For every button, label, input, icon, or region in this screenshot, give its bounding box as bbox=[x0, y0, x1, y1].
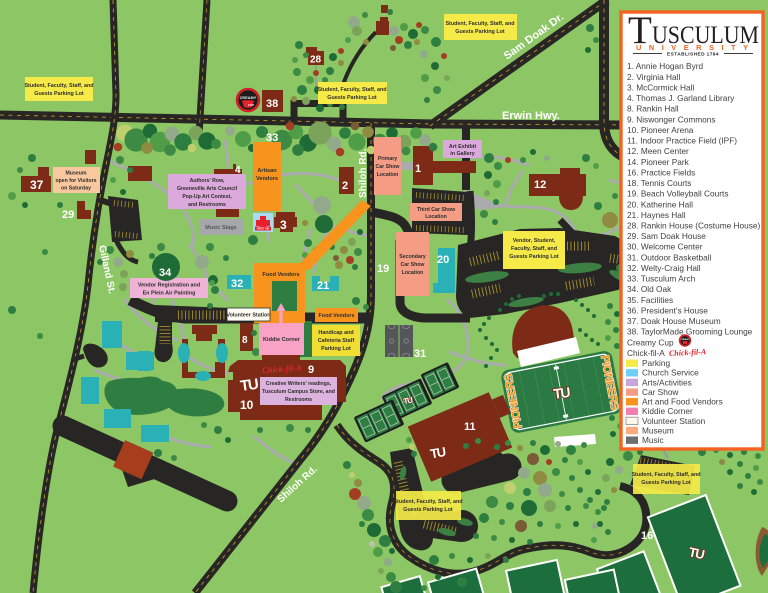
svg-text:Creamy Cup: Creamy Cup bbox=[627, 337, 674, 347]
svg-text:in Gallery: in Gallery bbox=[450, 151, 475, 157]
svg-text:Music Stage: Music Stage bbox=[205, 225, 236, 231]
svg-text:Guests Parking Lot: Guests Parking Lot bbox=[403, 507, 453, 513]
svg-text:Student, Faculty, Staff, and: Student, Faculty, Staff, and bbox=[631, 472, 700, 478]
svg-text:32. Welty-Craig Hall: 32. Welty-Craig Hall bbox=[627, 263, 701, 273]
svg-text:Car Show: Car Show bbox=[376, 164, 401, 170]
svg-text:Car Show: Car Show bbox=[642, 387, 679, 397]
svg-text:4. Thomas J. Garland Library: 4. Thomas J. Garland Library bbox=[627, 93, 735, 103]
svg-text:Restrooms: Restrooms bbox=[285, 397, 312, 403]
svg-text:Tusculum Campus Store, and: Tusculum Campus Store, and bbox=[262, 389, 335, 395]
svg-text:Location: Location bbox=[402, 270, 424, 276]
svg-text:Student, Faculty, Staff, and: Student, Faculty, Staff, and bbox=[393, 499, 462, 505]
svg-text:Student, Faculty, Staff, and: Student, Faculty, Staff, and bbox=[445, 21, 514, 27]
svg-text:Vendor Registration and: Vendor Registration and bbox=[138, 283, 200, 289]
svg-text:21. Haynes Hall: 21. Haynes Hall bbox=[627, 210, 686, 220]
svg-text:Food Vendors: Food Vendors bbox=[319, 313, 355, 319]
svg-text:9. Niswonger Commons: 9. Niswonger Commons bbox=[627, 114, 716, 124]
svg-text:Art and Food Vendors: Art and Food Vendors bbox=[642, 397, 723, 407]
svg-text:12: 12 bbox=[534, 179, 546, 191]
svg-text:Volunteer Station: Volunteer Station bbox=[226, 313, 270, 319]
svg-text:and Restrooms: and Restrooms bbox=[188, 202, 226, 208]
svg-text:Car Show: Car Show bbox=[401, 262, 426, 268]
svg-text:Kiddie Corner: Kiddie Corner bbox=[642, 406, 693, 416]
svg-text:1. Annie Hogan Byrd: 1. Annie Hogan Byrd bbox=[627, 61, 703, 71]
svg-text:2. Virginia Hall: 2. Virginia Hall bbox=[627, 72, 680, 82]
svg-text:Kiddie Corner: Kiddie Corner bbox=[263, 337, 301, 343]
svg-text:20: 20 bbox=[437, 254, 449, 266]
svg-text:Student, Faculty, Staff, and: Student, Faculty, Staff, and bbox=[24, 83, 93, 89]
svg-text:Faculty, Staff, and: Faculty, Staff, and bbox=[511, 246, 557, 252]
svg-text:2: 2 bbox=[342, 180, 348, 192]
svg-text:12. Meen Center: 12. Meen Center bbox=[627, 146, 689, 156]
svg-text:19: 19 bbox=[377, 263, 389, 275]
svg-text:Greeneville Arts Council: Greeneville Arts Council bbox=[177, 186, 238, 192]
svg-text:Erwin Hwy.: Erwin Hwy. bbox=[502, 110, 560, 122]
svg-text:Chick-fil-A: Chick-fil-A bbox=[627, 348, 665, 358]
svg-text:28: 28 bbox=[310, 55, 322, 66]
svg-text:34: 34 bbox=[159, 267, 172, 279]
svg-text:31: 31 bbox=[414, 348, 426, 360]
svg-text:8: 8 bbox=[242, 335, 248, 346]
svg-text:3. McCormick Hall: 3. McCormick Hall bbox=[627, 82, 694, 92]
svg-text:Primary: Primary bbox=[378, 156, 397, 162]
svg-text:Church Service: Church Service bbox=[642, 368, 699, 378]
svg-text:Handicap and: Handicap and bbox=[318, 330, 353, 336]
svg-text:open for Visitors: open for Visitors bbox=[55, 178, 96, 184]
svg-text:38. TaylorMade Grooming Lounge: 38. TaylorMade Grooming Lounge bbox=[627, 327, 753, 337]
svg-text:33. Tusculum Arch: 33. Tusculum Arch bbox=[627, 274, 696, 284]
svg-text:34. Old Oak: 34. Old Oak bbox=[627, 284, 672, 294]
svg-text:11: 11 bbox=[464, 421, 476, 433]
svg-text:37. Doak House Museum: 37. Doak House Museum bbox=[627, 316, 721, 326]
svg-text:8. Rankin Hall: 8. Rankin Hall bbox=[627, 104, 679, 114]
svg-text:10: 10 bbox=[240, 398, 254, 412]
svg-text:Food Vendors: Food Vendors bbox=[262, 272, 299, 278]
svg-text:Volunteer Station: Volunteer Station bbox=[642, 416, 706, 426]
svg-text:Vendor, Student,: Vendor, Student, bbox=[513, 238, 556, 244]
svg-text:11. Indoor Practice Field (IPF: 11. Indoor Practice Field (IPF) bbox=[627, 136, 737, 146]
svg-text:Guests Parking Lot: Guests Parking Lot bbox=[455, 29, 505, 35]
svg-text:Authors' Row,: Authors' Row, bbox=[190, 178, 225, 184]
svg-text:Secondary: Secondary bbox=[399, 254, 426, 260]
svg-text:Student, Faculty, Staff, and: Student, Faculty, Staff, and bbox=[317, 87, 386, 93]
svg-text:on Saturday: on Saturday bbox=[61, 186, 91, 192]
svg-text:Cafeteria Staff: Cafeteria Staff bbox=[318, 338, 355, 344]
svg-text:31. Outdoor Basketball: 31. Outdoor Basketball bbox=[627, 252, 712, 262]
svg-text:16. Practice Fields: 16. Practice Fields bbox=[627, 167, 695, 177]
svg-text:21: 21 bbox=[317, 280, 329, 292]
svg-text:Location: Location bbox=[425, 214, 447, 220]
svg-text:Creative Writers' readings,: Creative Writers' readings, bbox=[266, 381, 332, 387]
svg-text:29. Sam Doak House: 29. Sam Doak House bbox=[627, 231, 706, 241]
svg-text:FIRST AID: FIRST AID bbox=[257, 227, 270, 231]
svg-text:33: 33 bbox=[266, 132, 278, 144]
svg-text:14. Pioneer Park: 14. Pioneer Park bbox=[627, 157, 690, 167]
svg-text:CREAMY: CREAMY bbox=[240, 96, 257, 100]
svg-text:36. President's House: 36. President's House bbox=[627, 306, 708, 316]
svg-text:19. Beach Volleyball Courts: 19. Beach Volleyball Courts bbox=[627, 189, 728, 199]
svg-text:TU: TU bbox=[239, 376, 259, 395]
svg-text:Museum: Museum bbox=[642, 425, 674, 435]
svg-text:Parking: Parking bbox=[642, 358, 671, 368]
svg-text:10. Pioneer Arena: 10. Pioneer Arena bbox=[627, 125, 694, 135]
svg-text:18. Tennis Courts: 18. Tennis Courts bbox=[627, 178, 691, 188]
svg-text:1: 1 bbox=[415, 163, 421, 175]
svg-text:Guests Parking Lot: Guests Parking Lot bbox=[327, 95, 377, 101]
svg-text:CUP: CUP bbox=[248, 103, 254, 107]
svg-text:3: 3 bbox=[280, 218, 287, 232]
svg-text:35. Facilities: 35. Facilities bbox=[627, 295, 673, 305]
svg-text:20. Katherine Hall: 20. Katherine Hall bbox=[627, 199, 693, 209]
svg-text:30. Welcome Center: 30. Welcome Center bbox=[627, 242, 703, 252]
svg-text:37: 37 bbox=[30, 178, 44, 192]
svg-text:Guests Parking Lot: Guests Parking Lot bbox=[509, 254, 559, 260]
svg-text:9: 9 bbox=[308, 364, 314, 376]
svg-text:Location: Location bbox=[377, 172, 399, 178]
svg-text:ESTABLISHED 1794: ESTABLISHED 1794 bbox=[667, 52, 719, 58]
svg-text:Guests Parking Lot: Guests Parking Lot bbox=[641, 480, 691, 486]
svg-text:32: 32 bbox=[231, 278, 243, 290]
svg-text:Arts/Activities: Arts/Activities bbox=[642, 377, 692, 387]
svg-text:Artisan: Artisan bbox=[257, 168, 277, 174]
svg-text:Vendors: Vendors bbox=[256, 176, 278, 182]
svg-text:Guests Parking Lot: Guests Parking Lot bbox=[34, 91, 84, 97]
svg-text:16: 16 bbox=[641, 530, 653, 542]
svg-text:CREAMY: CREAMY bbox=[681, 338, 690, 341]
svg-text:Third Car Show: Third Car Show bbox=[417, 207, 456, 213]
svg-text:En Plein Air Painting: En Plein Air Painting bbox=[143, 291, 196, 297]
svg-text:Shiloh Rd.: Shiloh Rd. bbox=[358, 148, 369, 198]
svg-text:28. Rankin House (Costume Hous: 28. Rankin House (Costume House) bbox=[627, 221, 761, 231]
svg-text:Art Exhibit: Art Exhibit bbox=[449, 144, 476, 150]
svg-text:38: 38 bbox=[266, 98, 278, 110]
svg-text:Museum: Museum bbox=[65, 171, 86, 177]
svg-text:Parking Lot: Parking Lot bbox=[321, 346, 351, 352]
svg-text:29: 29 bbox=[62, 209, 74, 221]
svg-text:Music: Music bbox=[642, 435, 664, 445]
svg-text:Pop-Up Art Contest,: Pop-Up Art Contest, bbox=[182, 194, 232, 200]
